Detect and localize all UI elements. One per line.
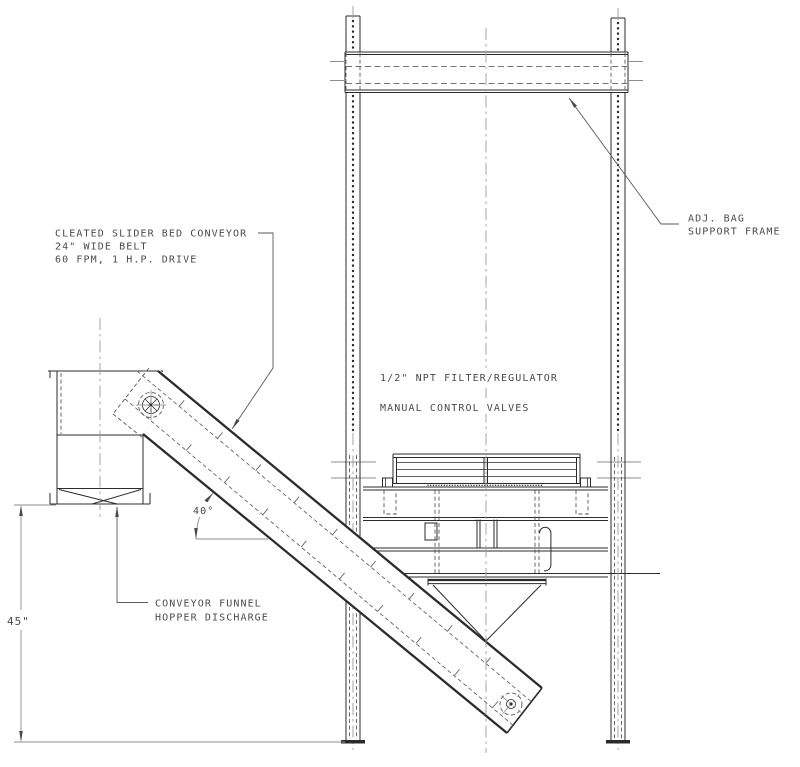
dim-height-text: 45" — [7, 615, 30, 628]
conveyor-label-3: 60 FPM, 1 H.P. DRIVE — [55, 255, 197, 266]
bag-frame-label-2: SUPPORT FRAME — [688, 227, 781, 238]
hopper-label-2: HOPPER DISCHARGE — [155, 613, 269, 624]
bag-frame-label-1: ADJ. BAG — [688, 214, 745, 225]
filter-regulator-pipe — [540, 527, 551, 571]
engineering-drawing-sheet: 45" 40° CLEATED SLIDER BED CONVEYOR 24" … — [0, 0, 800, 767]
conveyor-label-2: 24" WIDE BELT — [55, 242, 148, 253]
conveyor-label-1: CLEATED SLIDER BED CONVEYOR — [55, 229, 247, 240]
feed-hopper — [48, 318, 164, 520]
callout-bag-frame: ADJ. BAG SUPPORT FRAME — [569, 98, 781, 238]
bag-support-grate — [383, 454, 591, 487]
manual-control-valves — [477, 520, 497, 549]
hopper-label-1: CONVEYOR FUNNEL — [155, 599, 262, 610]
foot-plate-right — [606, 740, 630, 744]
conveyor-upper-edge — [158, 371, 542, 688]
callout-filter-valves: 1/2" NPT FILTER/REGULATOR MANUAL CONTROL… — [376, 368, 566, 414]
drawing-canvas: 45" 40° CLEATED SLIDER BED CONVEYOR 24" … — [0, 0, 800, 767]
callout-hopper-discharge: CONVEYOR FUNNEL HOPPER DISCHARGE — [115, 506, 269, 624]
filter-regulator-label: 1/2" NPT FILTER/REGULATOR — [380, 373, 558, 384]
dim-angle-text: 40° — [193, 506, 214, 517]
control-valves-label: MANUAL CONTROL VALVES — [380, 403, 530, 414]
